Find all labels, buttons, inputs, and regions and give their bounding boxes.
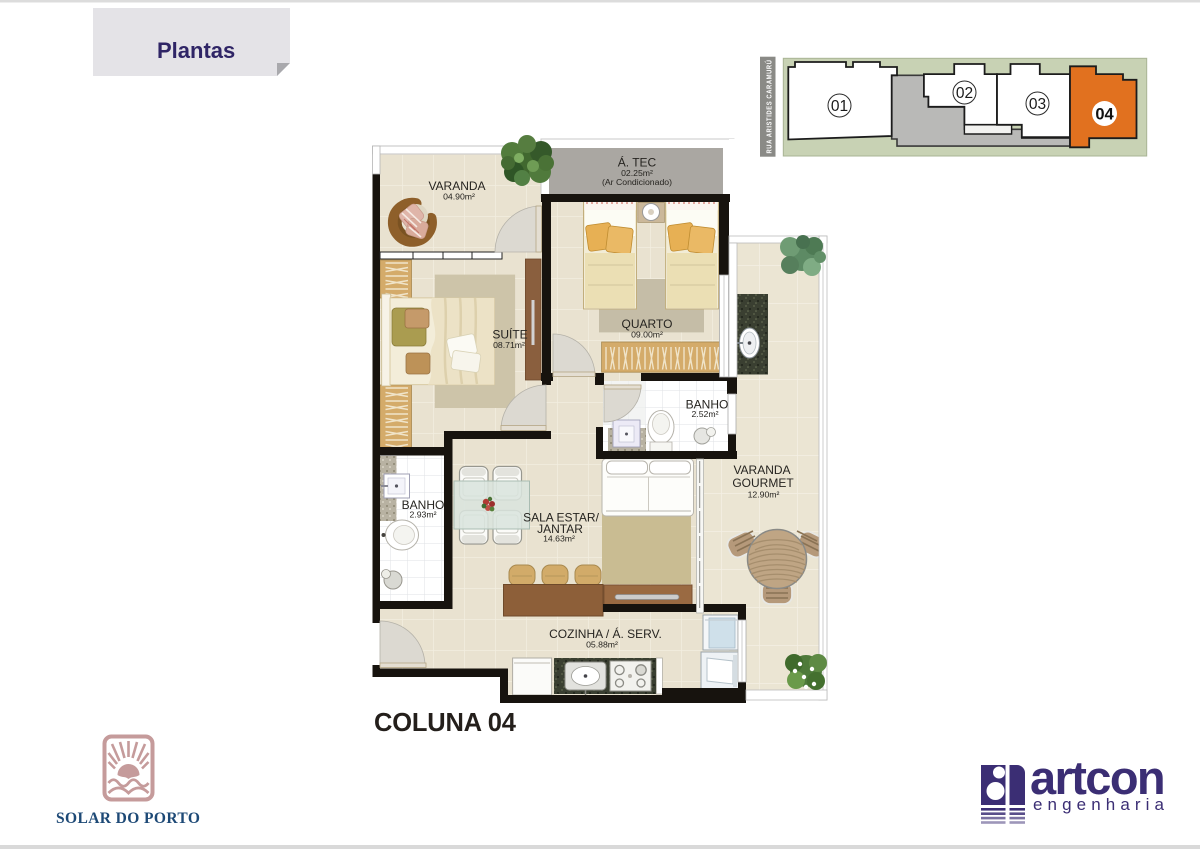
svg-text:engenharia: engenharia — [1033, 795, 1169, 814]
svg-text:GOURMET: GOURMET — [732, 476, 794, 490]
svg-text:02: 02 — [956, 85, 973, 102]
svg-text:2.52m²: 2.52m² — [691, 409, 718, 419]
svg-text:04: 04 — [1095, 106, 1114, 124]
svg-text:Plantas: Plantas — [157, 38, 235, 63]
svg-text:2.93m²: 2.93m² — [409, 510, 436, 520]
svg-text:08.71m²: 08.71m² — [493, 340, 525, 350]
svg-text:12.90m²: 12.90m² — [748, 490, 780, 500]
svg-text:SOLAR DO PORTO: SOLAR DO PORTO — [56, 810, 200, 827]
svg-text:14.63m²: 14.63m² — [543, 534, 575, 544]
svg-text:RUA ARISTIDES CARAMURÚ: RUA ARISTIDES CARAMURÚ — [764, 60, 773, 154]
svg-text:COLUNA 04: COLUNA 04 — [374, 709, 517, 737]
svg-text:04.90m²: 04.90m² — [443, 192, 475, 202]
svg-text:05.88m²: 05.88m² — [586, 640, 618, 650]
svg-text:(Ar Condicionado): (Ar Condicionado) — [602, 177, 672, 187]
svg-text:03: 03 — [1029, 96, 1046, 113]
svg-text:09.00m²: 09.00m² — [631, 330, 663, 340]
svg-text:VARANDA: VARANDA — [733, 463, 790, 477]
svg-text:01: 01 — [831, 98, 848, 115]
